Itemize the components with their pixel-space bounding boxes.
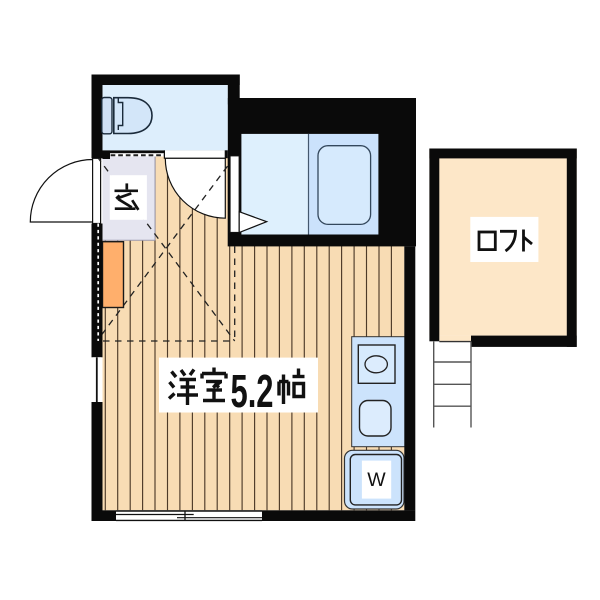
svg-text:5.2: 5.2 [231,365,274,417]
svg-text:W: W [367,469,386,491]
